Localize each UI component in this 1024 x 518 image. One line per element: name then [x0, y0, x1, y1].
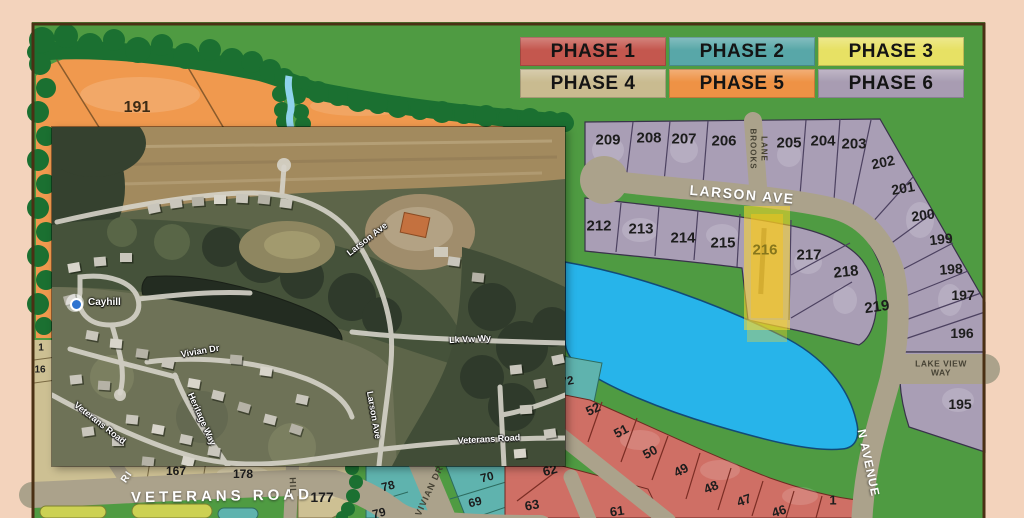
legend-item-phase-3: PHASE 3	[818, 37, 964, 66]
lot-216-highlight	[744, 206, 790, 342]
house	[279, 198, 292, 209]
map-pin-icon	[70, 298, 83, 311]
house	[447, 256, 460, 267]
house	[94, 256, 107, 266]
house	[187, 378, 200, 389]
legend-item-phase-5: PHASE 5	[669, 69, 815, 98]
legend-item-phase-1: PHASE 1	[520, 37, 666, 66]
house	[510, 364, 523, 374]
house	[98, 381, 111, 391]
house	[259, 366, 272, 377]
house	[151, 424, 164, 435]
house	[126, 414, 139, 424]
legend: PHASE 1PHASE 2PHASE 3PHASE 4PHASE 5PHASE…	[520, 37, 964, 98]
house	[85, 330, 98, 341]
house	[81, 426, 94, 437]
house	[110, 338, 123, 348]
legend-item-phase-4: PHASE 4	[520, 69, 666, 98]
house	[236, 194, 248, 204]
house	[70, 374, 83, 384]
house	[169, 198, 182, 209]
legend-item-phase-2: PHASE 2	[669, 37, 815, 66]
house	[520, 405, 533, 415]
house	[543, 428, 556, 439]
house	[135, 348, 148, 359]
aerial-inset: Larson AveLk Vw WyVivian DrHeritage WayL…	[52, 127, 565, 466]
house	[258, 194, 271, 204]
house	[181, 456, 195, 466]
legend-item-phase-6: PHASE 6	[818, 69, 964, 98]
house	[120, 253, 132, 262]
house	[207, 446, 220, 457]
house	[230, 354, 243, 364]
inset-place-label-cayhill: Cayhill	[88, 297, 121, 308]
house	[142, 456, 155, 466]
house	[192, 197, 205, 207]
house	[514, 448, 527, 458]
house	[472, 272, 485, 282]
subdivision-phase-map: 1912092082072062052042032022012001991981…	[0, 0, 1024, 518]
stream	[288, 76, 291, 134]
house	[214, 195, 226, 204]
